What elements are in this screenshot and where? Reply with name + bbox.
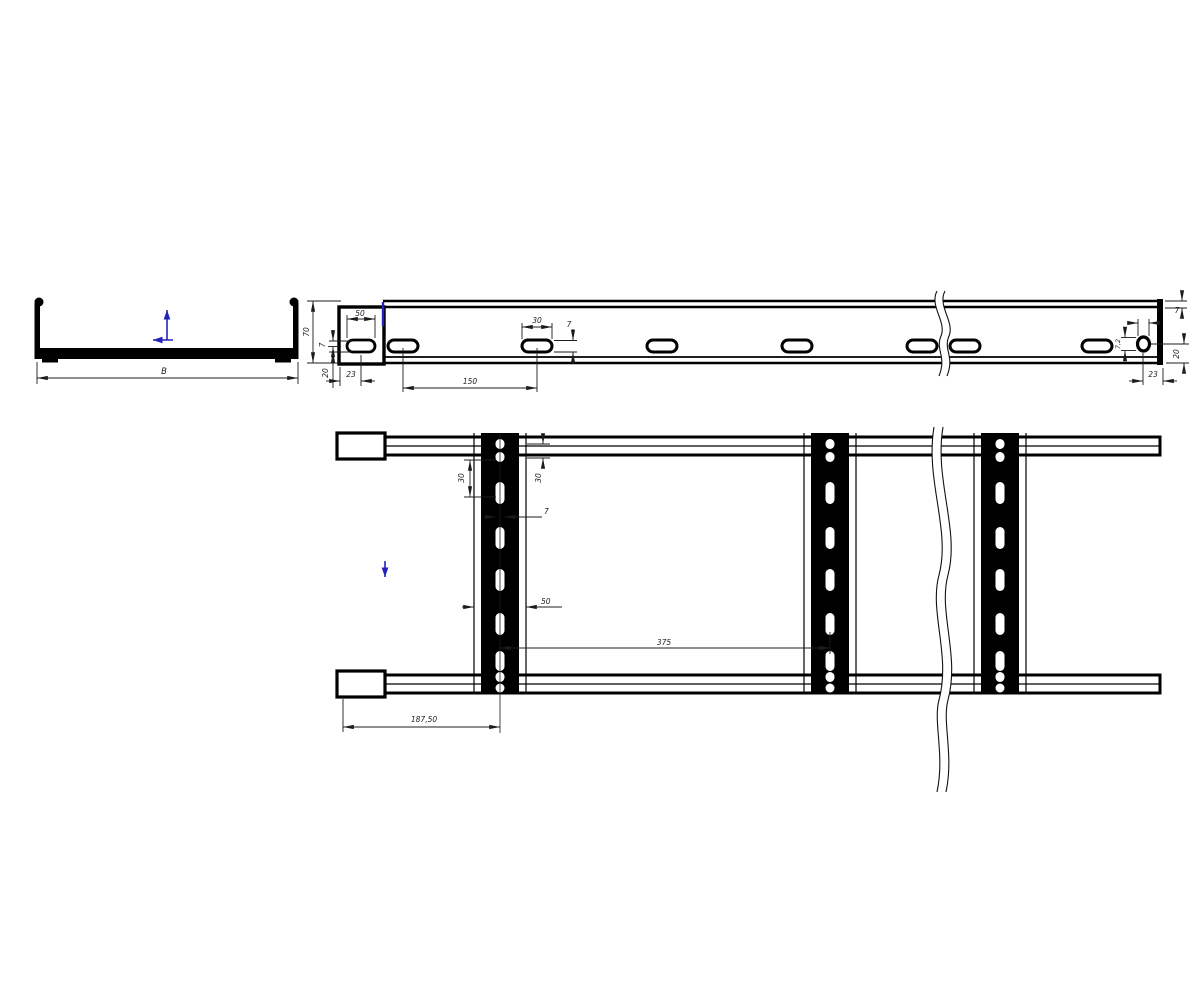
plan-view: 30 30 7 50 375 187,50 — [337, 427, 1160, 792]
technical-drawing: B — [0, 0, 1200, 1000]
dim-plan: 30 30 7 50 375 187,50 — [343, 434, 830, 733]
dim-label-slot-height-left: 7 — [318, 342, 327, 347]
top-rail-end-cap — [337, 433, 385, 459]
side-elevation-view: 70 50 7 20 23 150 — [302, 291, 1189, 392]
dim-label-end-slot-width: 50 — [355, 309, 365, 318]
dim-label-slot-pitch-left: 30 — [457, 473, 466, 483]
dim-label-slot-height: 7 — [567, 320, 572, 329]
dim-label-bottom-offset-left: 20 — [321, 368, 330, 378]
dim-label-hole-end-offset: 23 — [1148, 370, 1158, 379]
rail-slots — [388, 340, 1112, 352]
dim-label-hole-bottom-offset: 20 — [1172, 349, 1181, 359]
drawing-canvas: B — [0, 0, 1200, 1000]
rail-end-edge — [1157, 299, 1163, 365]
dim-label-rung-slot-width: 7 — [544, 507, 549, 516]
dim-label-width-B: B — [161, 367, 167, 377]
break-line — [932, 427, 952, 792]
dim-label-first-rung-offset: 187,50 — [411, 715, 437, 724]
dim-label-end-offset-left: 23 — [346, 370, 356, 379]
origin-axes-icon — [153, 310, 173, 340]
dim-label-height: 70 — [302, 327, 311, 337]
bottom-rail — [337, 671, 1160, 697]
mounting-hole — [1138, 337, 1150, 351]
rung-3 — [974, 433, 1026, 693]
dim-label-slot-pitch: 150 — [463, 377, 478, 386]
dim-label-hole-diameter: 7,2 — [1114, 339, 1122, 349]
dim-label-flange-thickness: 7 — [1175, 306, 1180, 315]
dim-width-B: B — [37, 362, 298, 384]
dim-label-slot-width: 30 — [532, 316, 542, 325]
dim-label-slot-pitch-right: 30 — [534, 473, 543, 483]
cross-section-view: B — [35, 298, 299, 385]
rail-body — [383, 301, 1160, 363]
dim-label-rung-pitch: 375 — [657, 638, 672, 647]
dim-label-rung-width: 50 — [541, 597, 551, 606]
top-rail — [337, 433, 1160, 459]
bottom-rail-end-cap — [337, 671, 385, 697]
